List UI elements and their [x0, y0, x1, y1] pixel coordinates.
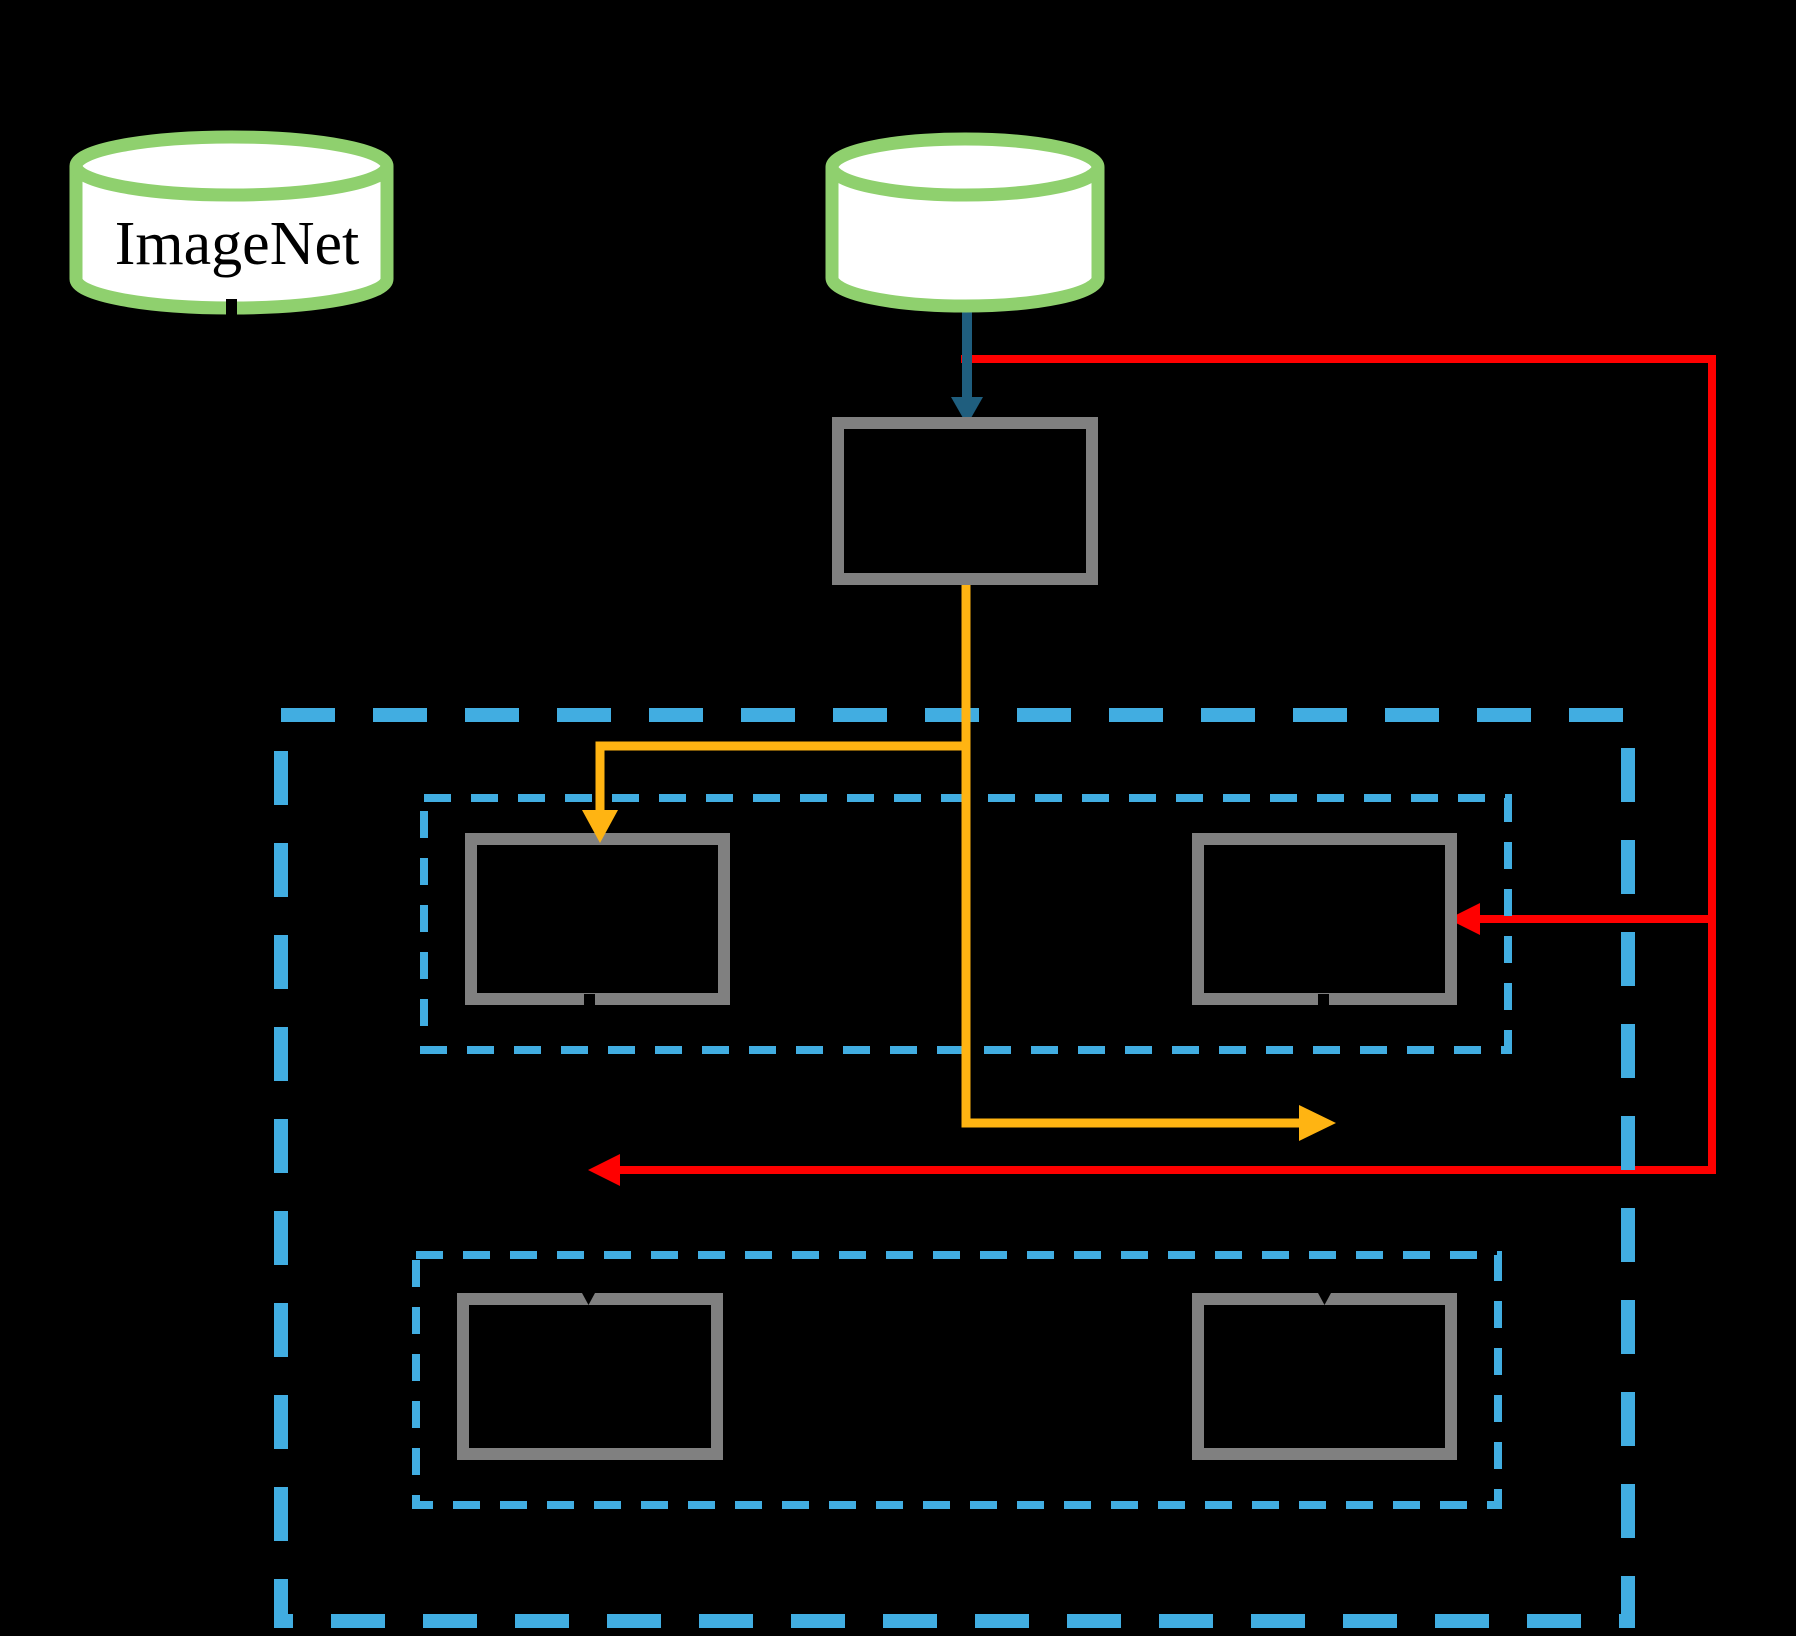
red-feedback-line	[618, 359, 1712, 1170]
upper-right-box-bottom-connector-stub	[1318, 994, 1329, 1008]
imagenet-cylinder-top	[76, 137, 387, 195]
second-database-icon	[832, 139, 1098, 306]
upper-left-process-box	[471, 839, 724, 999]
yellow-branch-line	[600, 746, 966, 812]
teal-arrow	[951, 306, 983, 425]
upper-left-box-bottom-connector-stub	[584, 994, 595, 1008]
red-arrowhead-left-icon	[588, 1154, 620, 1186]
lower-inner-dashed-container	[416, 1255, 1498, 1505]
lower-left-process-box	[463, 1299, 717, 1454]
yellow-arrowhead-right-icon	[1299, 1105, 1336, 1141]
red-feedback-path	[588, 359, 1712, 1186]
diagram-canvas: ImageNet	[0, 0, 1796, 1636]
yellow-forward-path	[582, 585, 1336, 1141]
imagenet-database-icon: ImageNet	[76, 137, 387, 315]
imagenet-label: ImageNet	[115, 210, 359, 278]
top-process-box	[838, 423, 1092, 579]
second-cylinder-top	[832, 139, 1098, 195]
imagenet-bottom-connector-stub	[226, 299, 237, 315]
yellow-main-line	[966, 585, 1300, 1123]
upper-right-process-box	[1198, 839, 1451, 999]
flow-diagram: ImageNet	[0, 0, 1796, 1636]
lower-right-process-box	[1198, 1299, 1451, 1454]
